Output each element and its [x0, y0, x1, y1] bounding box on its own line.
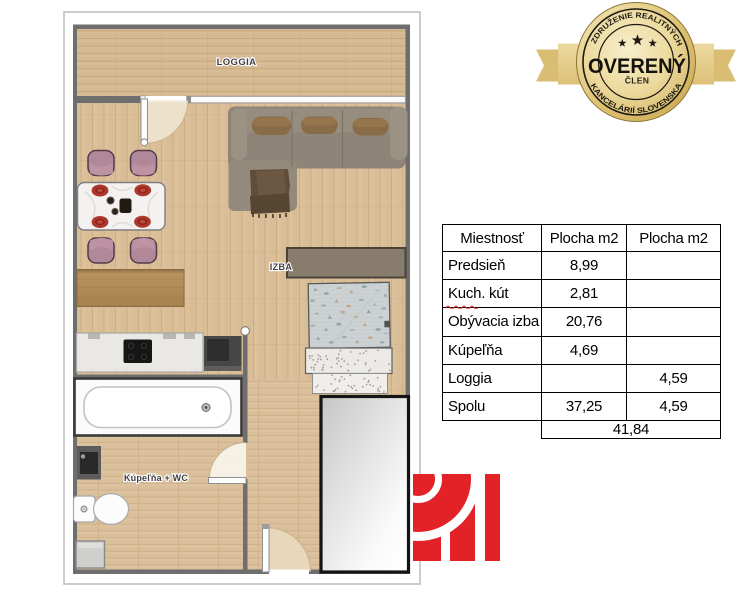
- svg-text:LOGGIA: LOGGIA: [217, 57, 257, 68]
- svg-text:IZBA: IZBA: [270, 262, 293, 272]
- svg-text:OVERENÝ: OVERENÝ: [588, 54, 686, 78]
- svg-text:ČLEN: ČLEN: [625, 75, 650, 86]
- svg-text:Kúpeľňa + WC: Kúpeľňa + WC: [124, 473, 188, 483]
